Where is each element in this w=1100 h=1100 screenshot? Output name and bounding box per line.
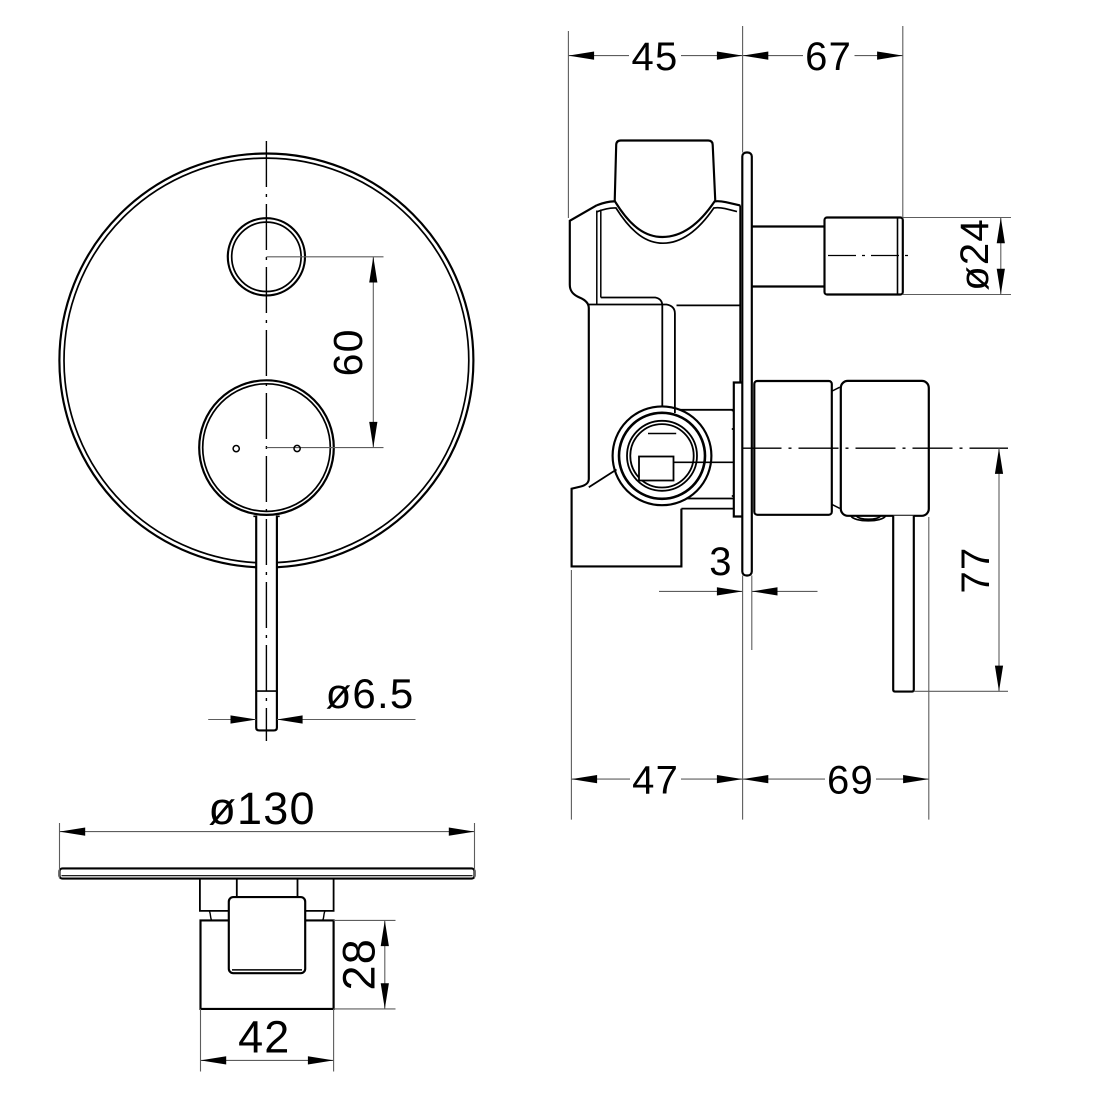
svg-text:3: 3 [709,540,732,584]
svg-text:ø24: ø24 [953,218,997,291]
svg-text:67: 67 [805,35,852,79]
svg-text:ø6.5: ø6.5 [326,670,415,717]
svg-text:60: 60 [325,328,371,376]
svg-text:ø130: ø130 [208,783,315,834]
svg-text:45: 45 [632,35,679,79]
svg-text:28: 28 [334,938,385,990]
svg-text:69: 69 [827,759,874,803]
svg-text:77: 77 [954,547,998,594]
svg-text:47: 47 [632,759,679,803]
svg-text:42: 42 [238,1012,290,1063]
